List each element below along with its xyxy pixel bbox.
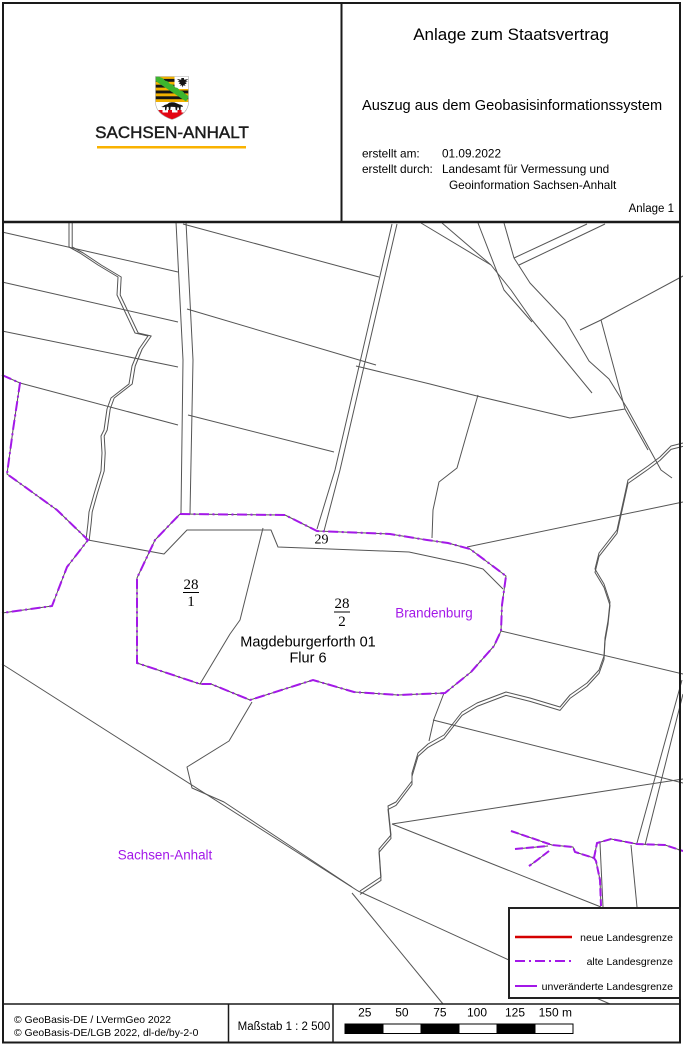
svg-text:125: 125	[505, 1006, 525, 1020]
svg-text:erstellt am:: erstellt am:	[362, 147, 420, 161]
svg-text:29: 29	[315, 533, 329, 548]
svg-text:28: 28	[184, 577, 199, 593]
svg-text:Geoinformation Sachsen-Anhalt: Geoinformation Sachsen-Anhalt	[449, 178, 617, 192]
svg-text:© GeoBasis-DE / LVermGeo 2022: © GeoBasis-DE / LVermGeo 2022	[14, 1015, 171, 1026]
svg-text:150 m: 150 m	[539, 1006, 572, 1020]
svg-text:28: 28	[335, 596, 350, 612]
svg-text:25: 25	[358, 1006, 372, 1020]
svg-text:100: 100	[467, 1006, 487, 1020]
svg-text:SACHSEN-ANHALT: SACHSEN-ANHALT	[95, 123, 249, 142]
svg-text:1: 1	[187, 594, 195, 610]
svg-text:Anlage zum Staatsvertrag: Anlage zum Staatsvertrag	[413, 25, 609, 44]
svg-text:Flur 6: Flur 6	[289, 651, 326, 667]
svg-text:Sachsen-Anhalt: Sachsen-Anhalt	[118, 848, 213, 863]
svg-text:Maßstab 1 : 2 500: Maßstab 1 : 2 500	[238, 1021, 331, 1033]
svg-text:2: 2	[338, 614, 346, 630]
svg-text:50: 50	[395, 1006, 409, 1020]
svg-text:Landesamt für Vermessung und: Landesamt für Vermessung und	[442, 162, 609, 176]
svg-text:© GeoBasis-DE/LGB 2022, dl-de/: © GeoBasis-DE/LGB 2022, dl-de/by-2-0	[14, 1028, 199, 1039]
svg-text:Magdeburgerforth 01: Magdeburgerforth 01	[240, 635, 375, 651]
svg-text:75: 75	[433, 1006, 447, 1020]
svg-text:unveränderte Landesgrenze: unveränderte Landesgrenze	[542, 981, 674, 993]
svg-text:alte Landesgrenze: alte Landesgrenze	[587, 956, 674, 968]
svg-text:Anlage 1: Anlage 1	[629, 203, 674, 215]
svg-text:01.09.2022: 01.09.2022	[442, 147, 501, 161]
svg-text:Brandenburg: Brandenburg	[395, 606, 472, 621]
svg-text:erstellt durch:: erstellt durch:	[362, 162, 433, 176]
svg-text:neue Landesgrenze: neue Landesgrenze	[580, 932, 673, 944]
svg-text:Auszug aus dem Geobasisinforma: Auszug aus dem Geobasisinformationssyste…	[362, 98, 662, 114]
